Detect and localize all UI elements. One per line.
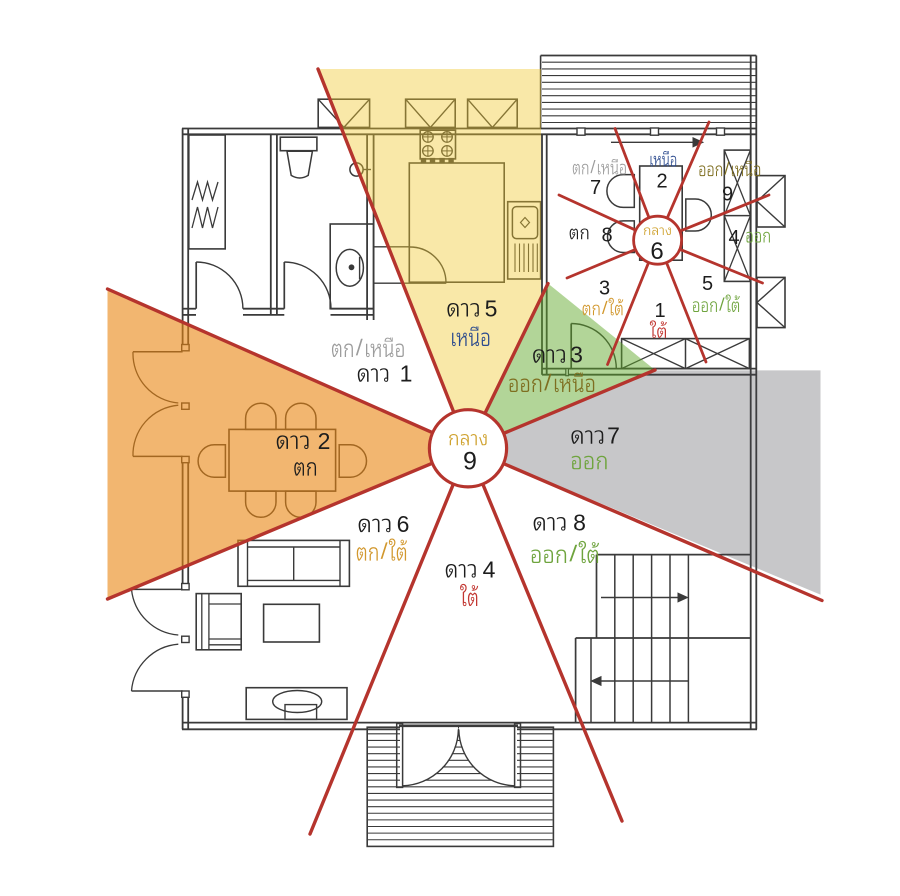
svg-text:6: 6 (397, 511, 410, 537)
svg-text:3: 3 (570, 342, 583, 368)
svg-text:1: 1 (654, 300, 665, 322)
svg-text:1: 1 (400, 361, 413, 387)
svg-text:3: 3 (599, 277, 610, 299)
svg-text:5: 5 (702, 273, 713, 295)
svg-text:6: 6 (650, 238, 663, 265)
svg-text:7: 7 (607, 423, 620, 449)
svg-text:9: 9 (463, 448, 477, 476)
svg-text:5: 5 (485, 296, 498, 322)
svg-text:8: 8 (573, 510, 586, 536)
svg-text:8: 8 (601, 225, 612, 247)
svg-text:2: 2 (318, 428, 331, 454)
svg-text:4: 4 (483, 557, 496, 583)
svg-text:7: 7 (590, 177, 601, 199)
svg-text:4: 4 (728, 227, 739, 249)
svg-text:9: 9 (722, 183, 733, 205)
svg-text:2: 2 (656, 170, 667, 192)
